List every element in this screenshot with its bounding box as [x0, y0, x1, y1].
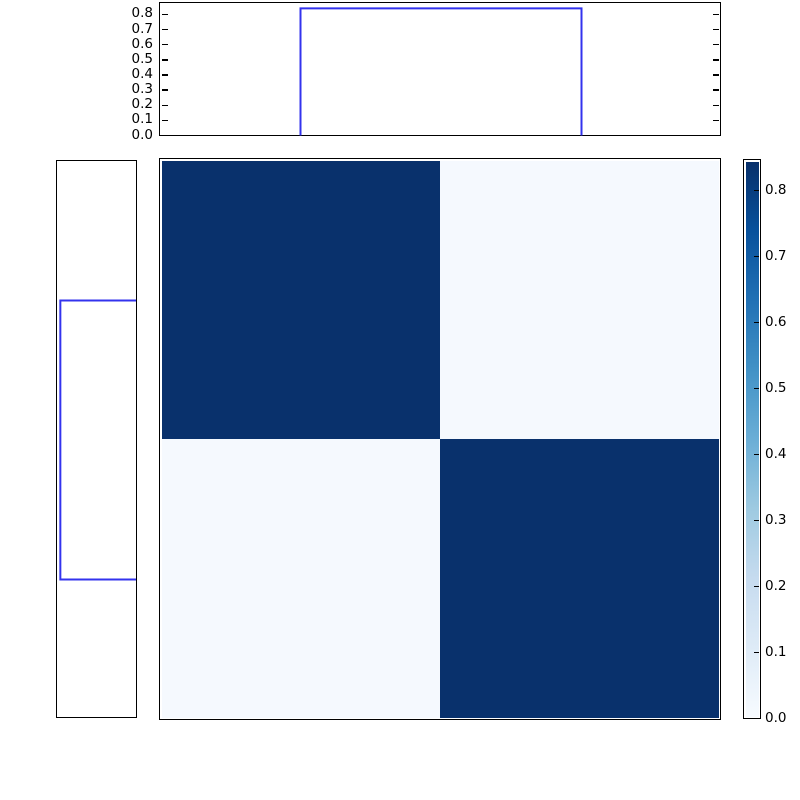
colorbar-axes: [743, 159, 761, 719]
top-axes-ytick-label: 0.8: [110, 4, 153, 22]
top-axes-ytick-left: [162, 105, 168, 106]
top-axes-ytick-right: [713, 29, 719, 30]
top-axes-ytick-right: [713, 74, 719, 75]
top-axes-ytick-left: [162, 29, 168, 30]
colorbar-tick: [754, 256, 759, 257]
top-axes-ytick-right: [713, 89, 719, 90]
figure-canvas: 0.00.10.20.30.40.50.60.70.80.00.10.20.30…: [0, 0, 800, 800]
top-axes-ytick-left: [162, 89, 168, 90]
heatmap-axes: [159, 158, 721, 720]
colorbar-tick: [754, 586, 759, 587]
top-axes-ytick-left: [162, 44, 168, 45]
top-axes-ytick-left: [162, 14, 168, 15]
top-axes-ytick-right: [713, 14, 719, 15]
colorbar-tick-label: 0.4: [765, 445, 786, 463]
colorbar-tick-label: 0.1: [765, 643, 786, 661]
colorbar-tick: [754, 322, 759, 323]
top-axes-ytick-right: [713, 105, 719, 106]
heatmap-cell-r1c1: [440, 439, 719, 718]
colorbar-tick: [754, 454, 759, 455]
colorbar-tick: [754, 718, 759, 719]
colorbar-tick: [754, 652, 759, 653]
top-axes-ytick-right: [713, 59, 719, 60]
heatmap-cell-r1c0: [162, 439, 441, 718]
heatmap-cell-r0c1: [440, 161, 719, 440]
colorbar-tick-label: 0.0: [765, 709, 786, 727]
top-axes-ytick-right: [713, 120, 719, 121]
top-marginal-axes: [159, 2, 721, 136]
colorbar-tick-label: 0.7: [765, 247, 786, 265]
top-axes-ytick-left: [162, 135, 168, 136]
colorbar-tick-label: 0.2: [765, 577, 786, 595]
top-axes-ytick-left: [162, 120, 168, 121]
colorbar-tick-label: 0.8: [765, 181, 786, 199]
left-step-line: [57, 161, 138, 719]
heatmap-cell-r0c0: [162, 161, 441, 440]
colorbar-gradient: [746, 162, 759, 717]
colorbar-tick: [754, 388, 759, 389]
top-axes-ytick-right: [713, 135, 719, 136]
top-step-line: [160, 3, 722, 137]
colorbar-tick: [754, 190, 759, 191]
left-marginal-axes: [56, 160, 137, 718]
colorbar-tick-label: 0.6: [765, 313, 786, 331]
top-axes-ytick-left: [162, 59, 168, 60]
heatmap-grid: [162, 161, 719, 718]
colorbar-tick-label: 0.3: [765, 511, 786, 529]
top-axes-ytick-left: [162, 74, 168, 75]
colorbar-tick: [754, 520, 759, 521]
top-axes-ytick-right: [713, 44, 719, 45]
colorbar-tick-label: 0.5: [765, 379, 786, 397]
